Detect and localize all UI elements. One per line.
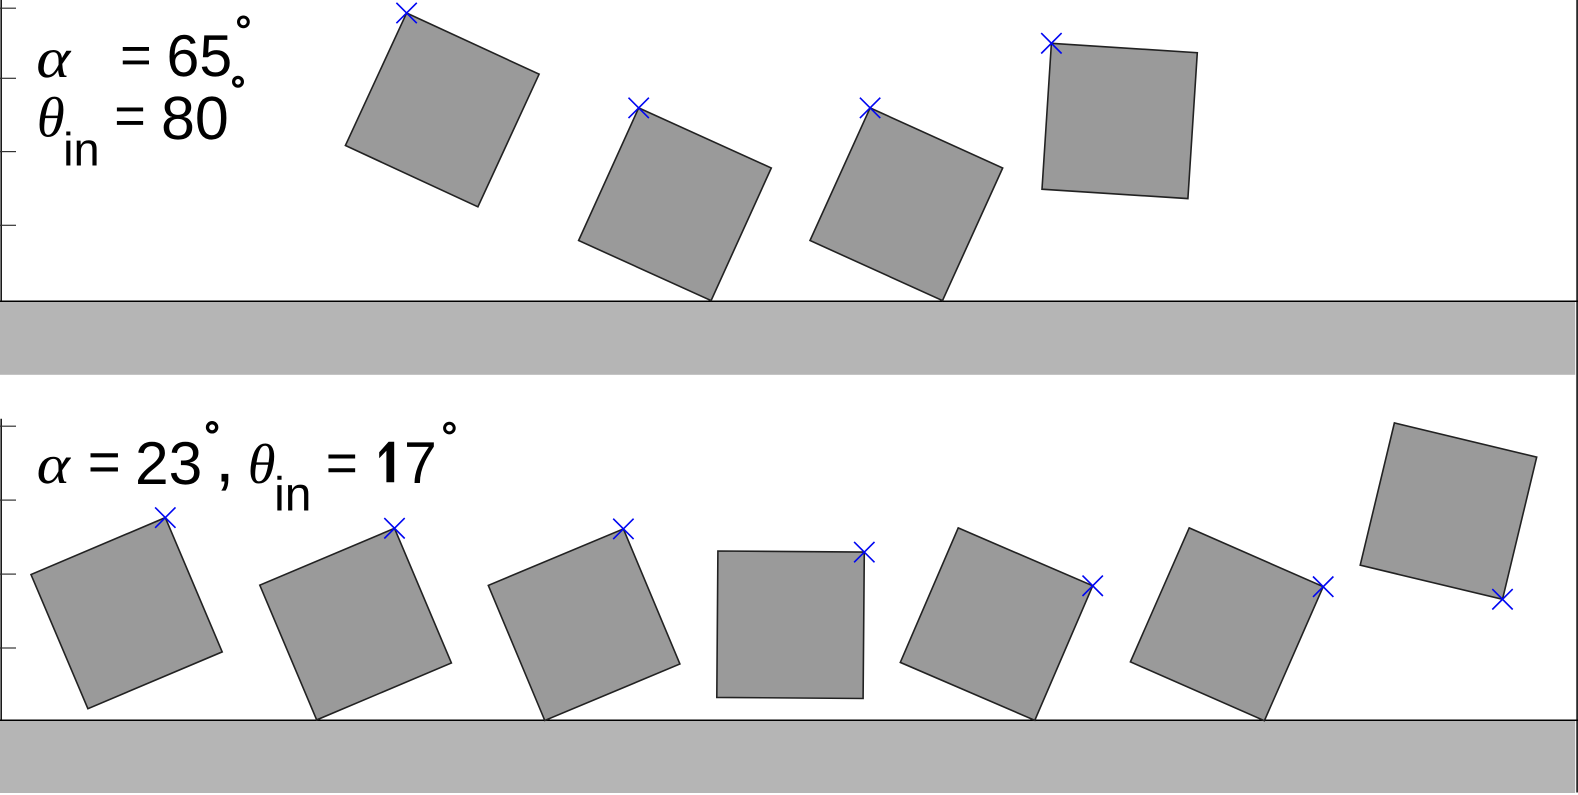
svg-text:7: 7 xyxy=(404,430,437,496)
svg-text:,: , xyxy=(215,418,235,498)
svg-text:θ: θ xyxy=(248,434,276,496)
svg-text:α: α xyxy=(37,434,72,496)
svg-text:θ: θ xyxy=(37,87,65,150)
svg-text:in: in xyxy=(63,123,100,176)
svg-text:65: 65 xyxy=(167,23,233,89)
svg-text:=: = xyxy=(114,86,146,146)
svg-text:α: α xyxy=(36,27,71,90)
svg-text:23: 23 xyxy=(135,429,202,497)
svg-text:=: = xyxy=(120,26,152,86)
svg-text:=: = xyxy=(88,430,121,493)
svg-text:=: = xyxy=(326,431,358,493)
svg-text:80: 80 xyxy=(161,84,229,152)
svg-text:in: in xyxy=(274,468,311,521)
